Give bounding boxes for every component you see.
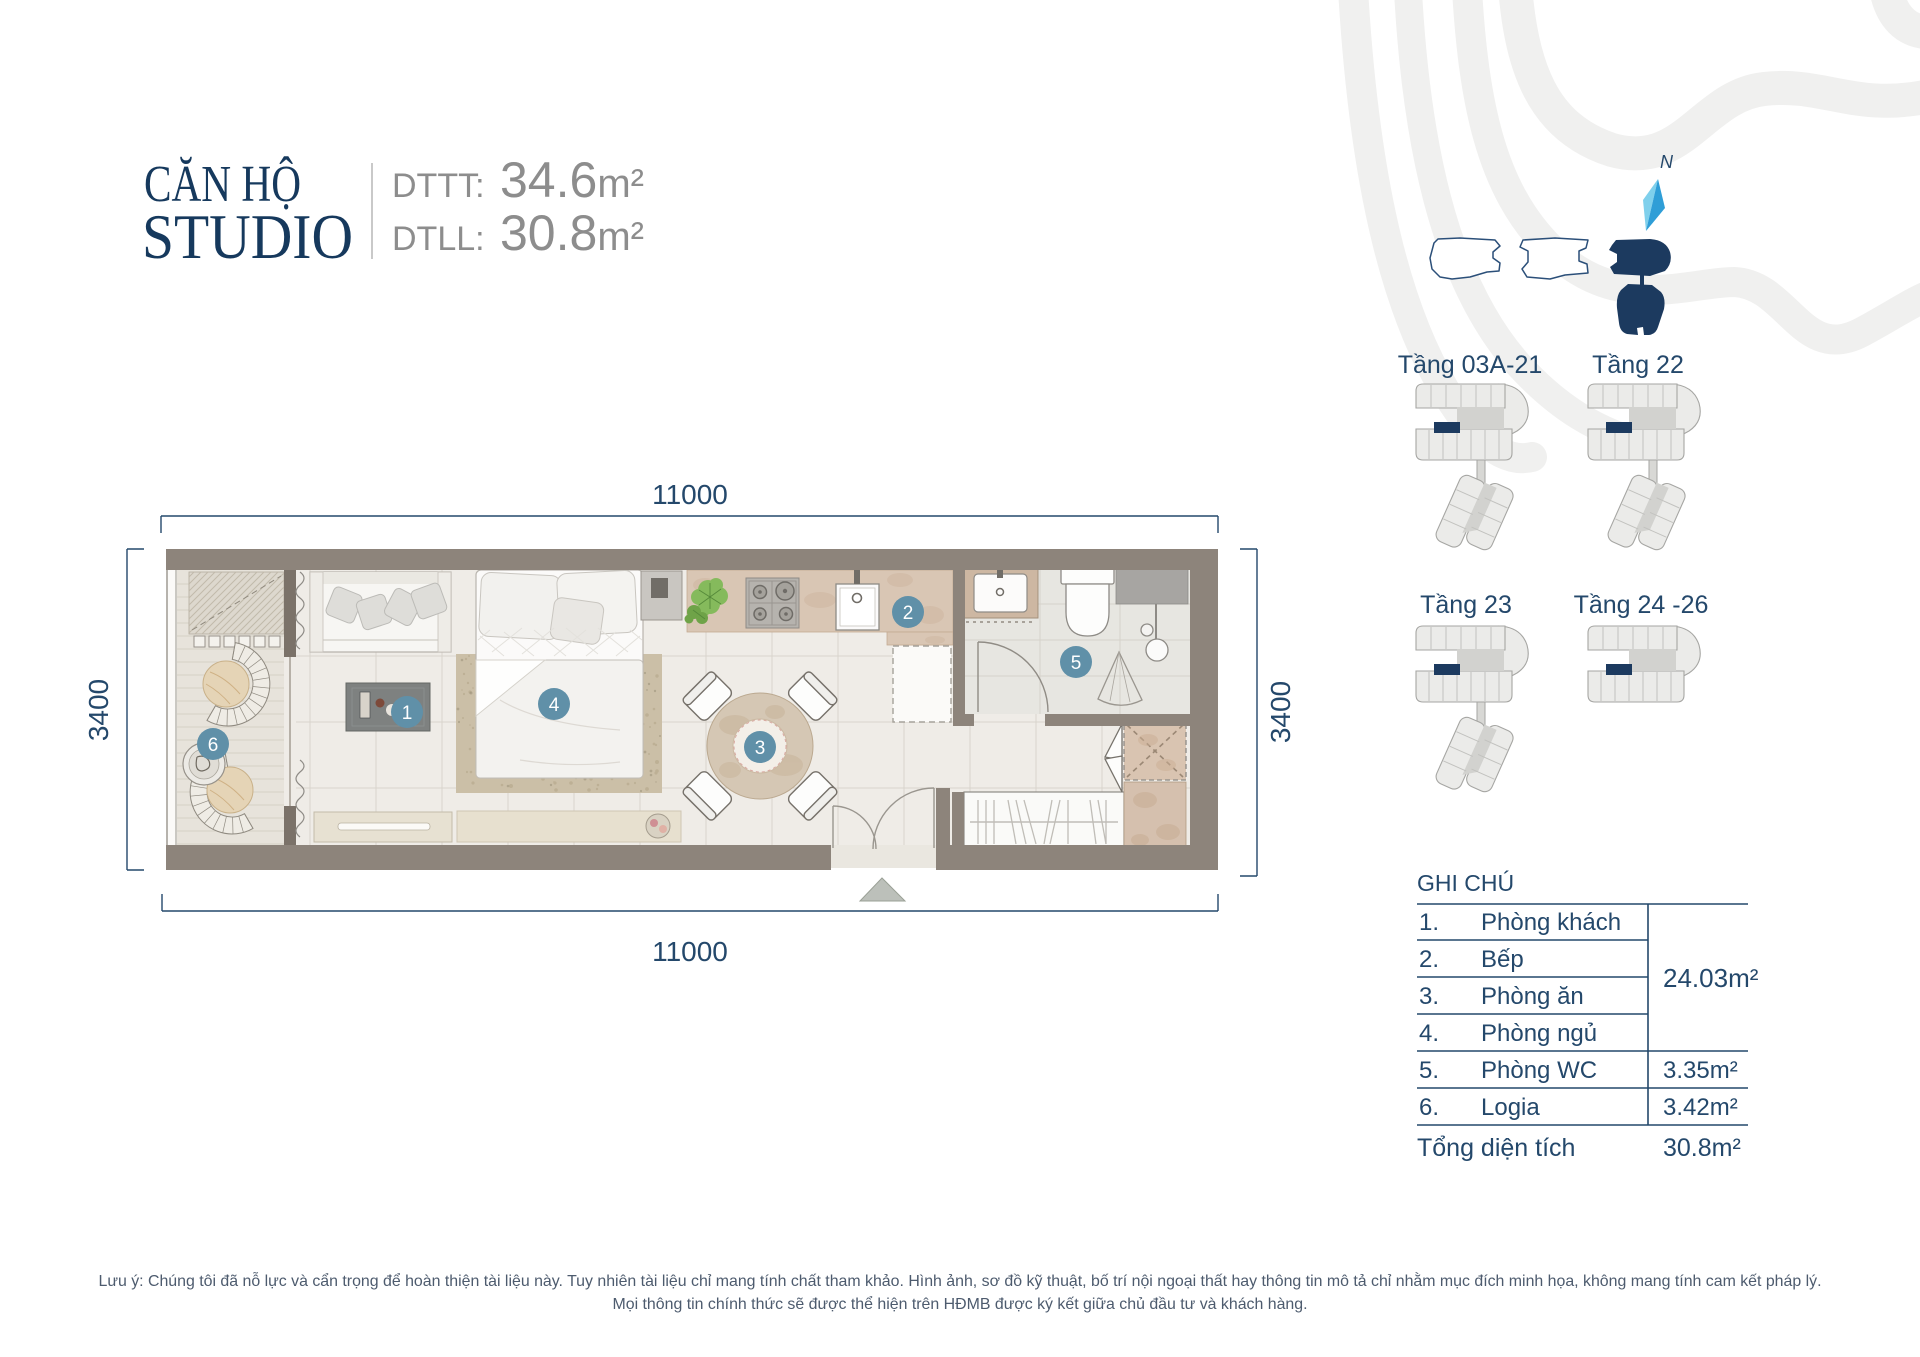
svg-text:Phòng ngủ: Phòng ngủ: [1481, 1020, 1597, 1047]
svg-text:4.: 4.: [1419, 1020, 1439, 1047]
svg-text:Logia: Logia: [1481, 1094, 1540, 1121]
svg-text:Phòng khách: Phòng khách: [1481, 909, 1621, 936]
svg-text:DTLL:: DTLL:: [392, 220, 485, 258]
svg-text:5.: 5.: [1419, 1057, 1439, 1084]
svg-text:Tầng 24 -26: Tầng 24 -26: [1574, 591, 1709, 619]
svg-text:5: 5: [1071, 653, 1082, 674]
svg-text:3.42m²: 3.42m²: [1663, 1094, 1738, 1121]
svg-text:Tầng 23: Tầng 23: [1420, 591, 1512, 619]
svg-text:Mọi thông tin chính thức sẽ đư: Mọi thông tin chính thức sẽ được thể hiệ…: [613, 1295, 1308, 1313]
svg-text:Tầng 03A-21: Tầng 03A-21: [1398, 351, 1543, 379]
svg-text:3.35m²: 3.35m²: [1663, 1057, 1738, 1084]
svg-text:1.: 1.: [1419, 909, 1439, 936]
svg-text:3: 3: [755, 738, 766, 759]
svg-text:3400: 3400: [83, 679, 114, 741]
svg-text:34.6m²: 34.6m²: [500, 152, 644, 208]
svg-text:Bếp: Bếp: [1481, 946, 1524, 973]
svg-text:11000: 11000: [652, 936, 728, 967]
svg-text:GHI CHÚ: GHI CHÚ: [1417, 870, 1514, 896]
svg-text:2.: 2.: [1419, 946, 1439, 973]
svg-text:30.8m²: 30.8m²: [500, 205, 644, 261]
svg-text:30.8m²: 30.8m²: [1663, 1134, 1741, 1162]
svg-text:STUDIO: STUDIO: [142, 201, 353, 272]
svg-text:3400: 3400: [1265, 681, 1296, 743]
svg-text:1: 1: [402, 703, 413, 724]
svg-text:11000: 11000: [652, 479, 728, 510]
svg-text:Lưu ý: Chúng tôi đã nỗ lực và: Lưu ý: Chúng tôi đã nỗ lực và cẩn trọng …: [98, 1271, 1821, 1290]
svg-text:6.: 6.: [1419, 1094, 1439, 1121]
svg-text:Phòng ăn: Phòng ăn: [1481, 983, 1584, 1010]
svg-text:3.: 3.: [1419, 983, 1439, 1010]
svg-text:Tổng diện tích: Tổng diện tích: [1417, 1134, 1575, 1162]
svg-text:2: 2: [903, 603, 914, 624]
svg-text:Phòng WC: Phòng WC: [1481, 1057, 1597, 1084]
svg-text:DTTT:: DTTT:: [392, 167, 485, 205]
svg-text:Tầng 22: Tầng 22: [1592, 351, 1684, 379]
svg-text:6: 6: [208, 735, 219, 756]
svg-text:24.03m²: 24.03m²: [1663, 963, 1759, 993]
svg-text:4: 4: [549, 695, 560, 716]
svg-text:N: N: [1660, 152, 1674, 172]
